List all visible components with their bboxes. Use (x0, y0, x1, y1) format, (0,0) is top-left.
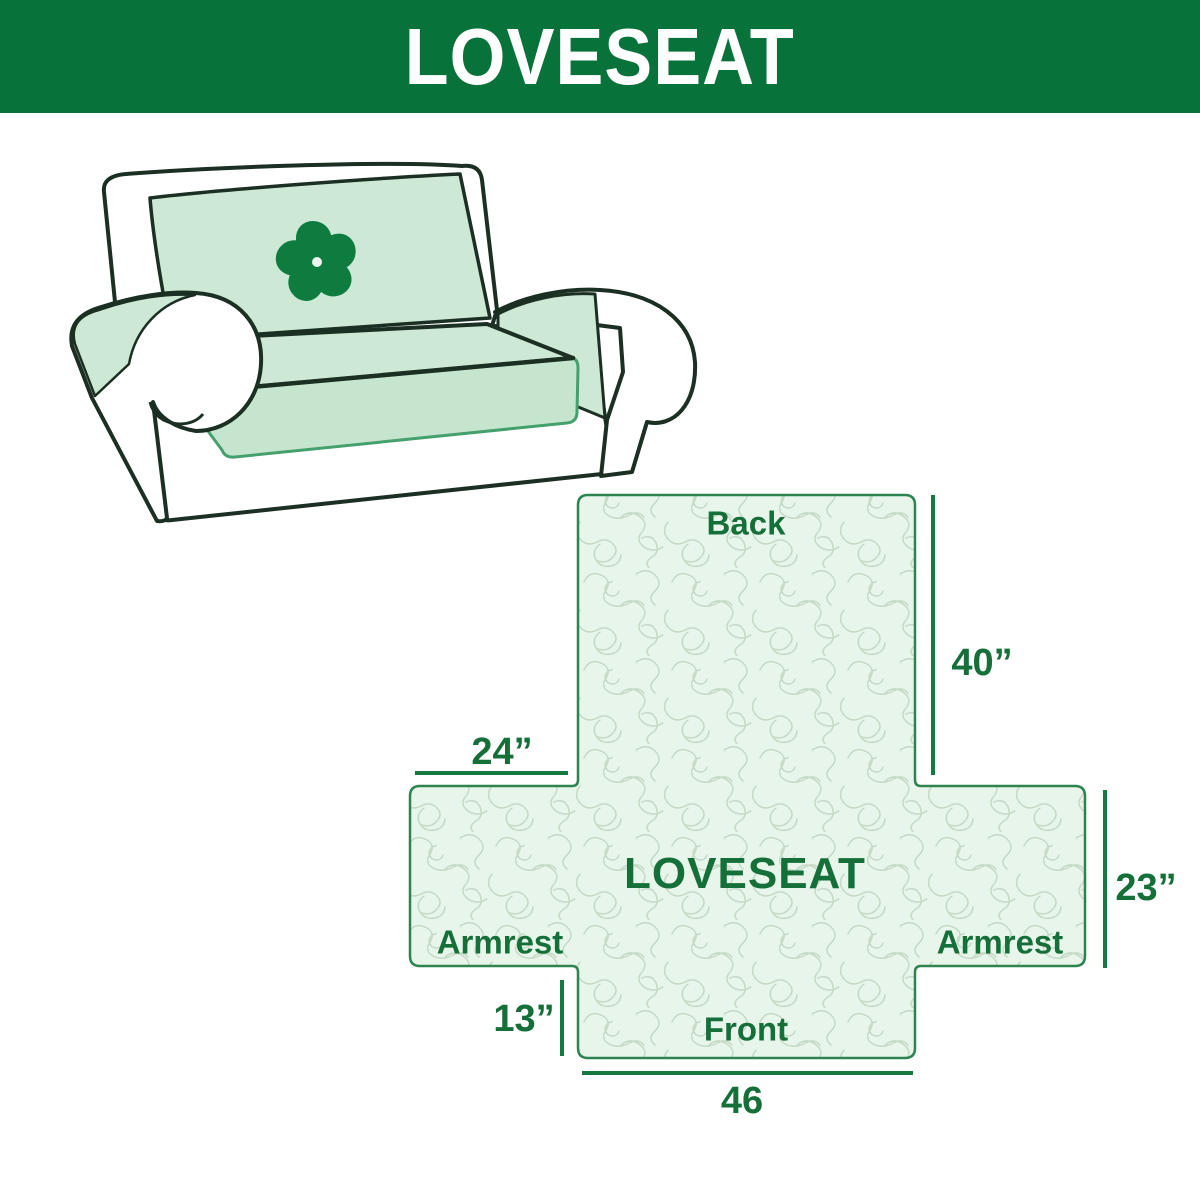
back-height-dimension: 40” (951, 644, 1012, 682)
armrest-width-dimension: 24” (471, 733, 532, 771)
seat-side-dimension: 23” (1115, 869, 1176, 907)
header-banner: LOVESEAT (0, 0, 1200, 113)
page-title: LOVESEAT (405, 17, 795, 97)
armrest-right-label: Armrest (937, 926, 1064, 959)
center-label: LOVESEAT (624, 852, 866, 896)
front-label: Front (704, 1013, 788, 1046)
cover-shape-drawing (400, 480, 1200, 1160)
front-height-dimension: 13” (493, 1000, 554, 1038)
back-label: Back (707, 507, 786, 540)
cover-diagram: Back 40” 24” LOVESEAT Armrest Armrest 23… (400, 480, 1200, 1160)
armrest-left-label: Armrest (437, 926, 564, 959)
front-width-dimension: 46 (721, 1082, 763, 1120)
loveseat-cover-outline (410, 495, 1085, 1058)
